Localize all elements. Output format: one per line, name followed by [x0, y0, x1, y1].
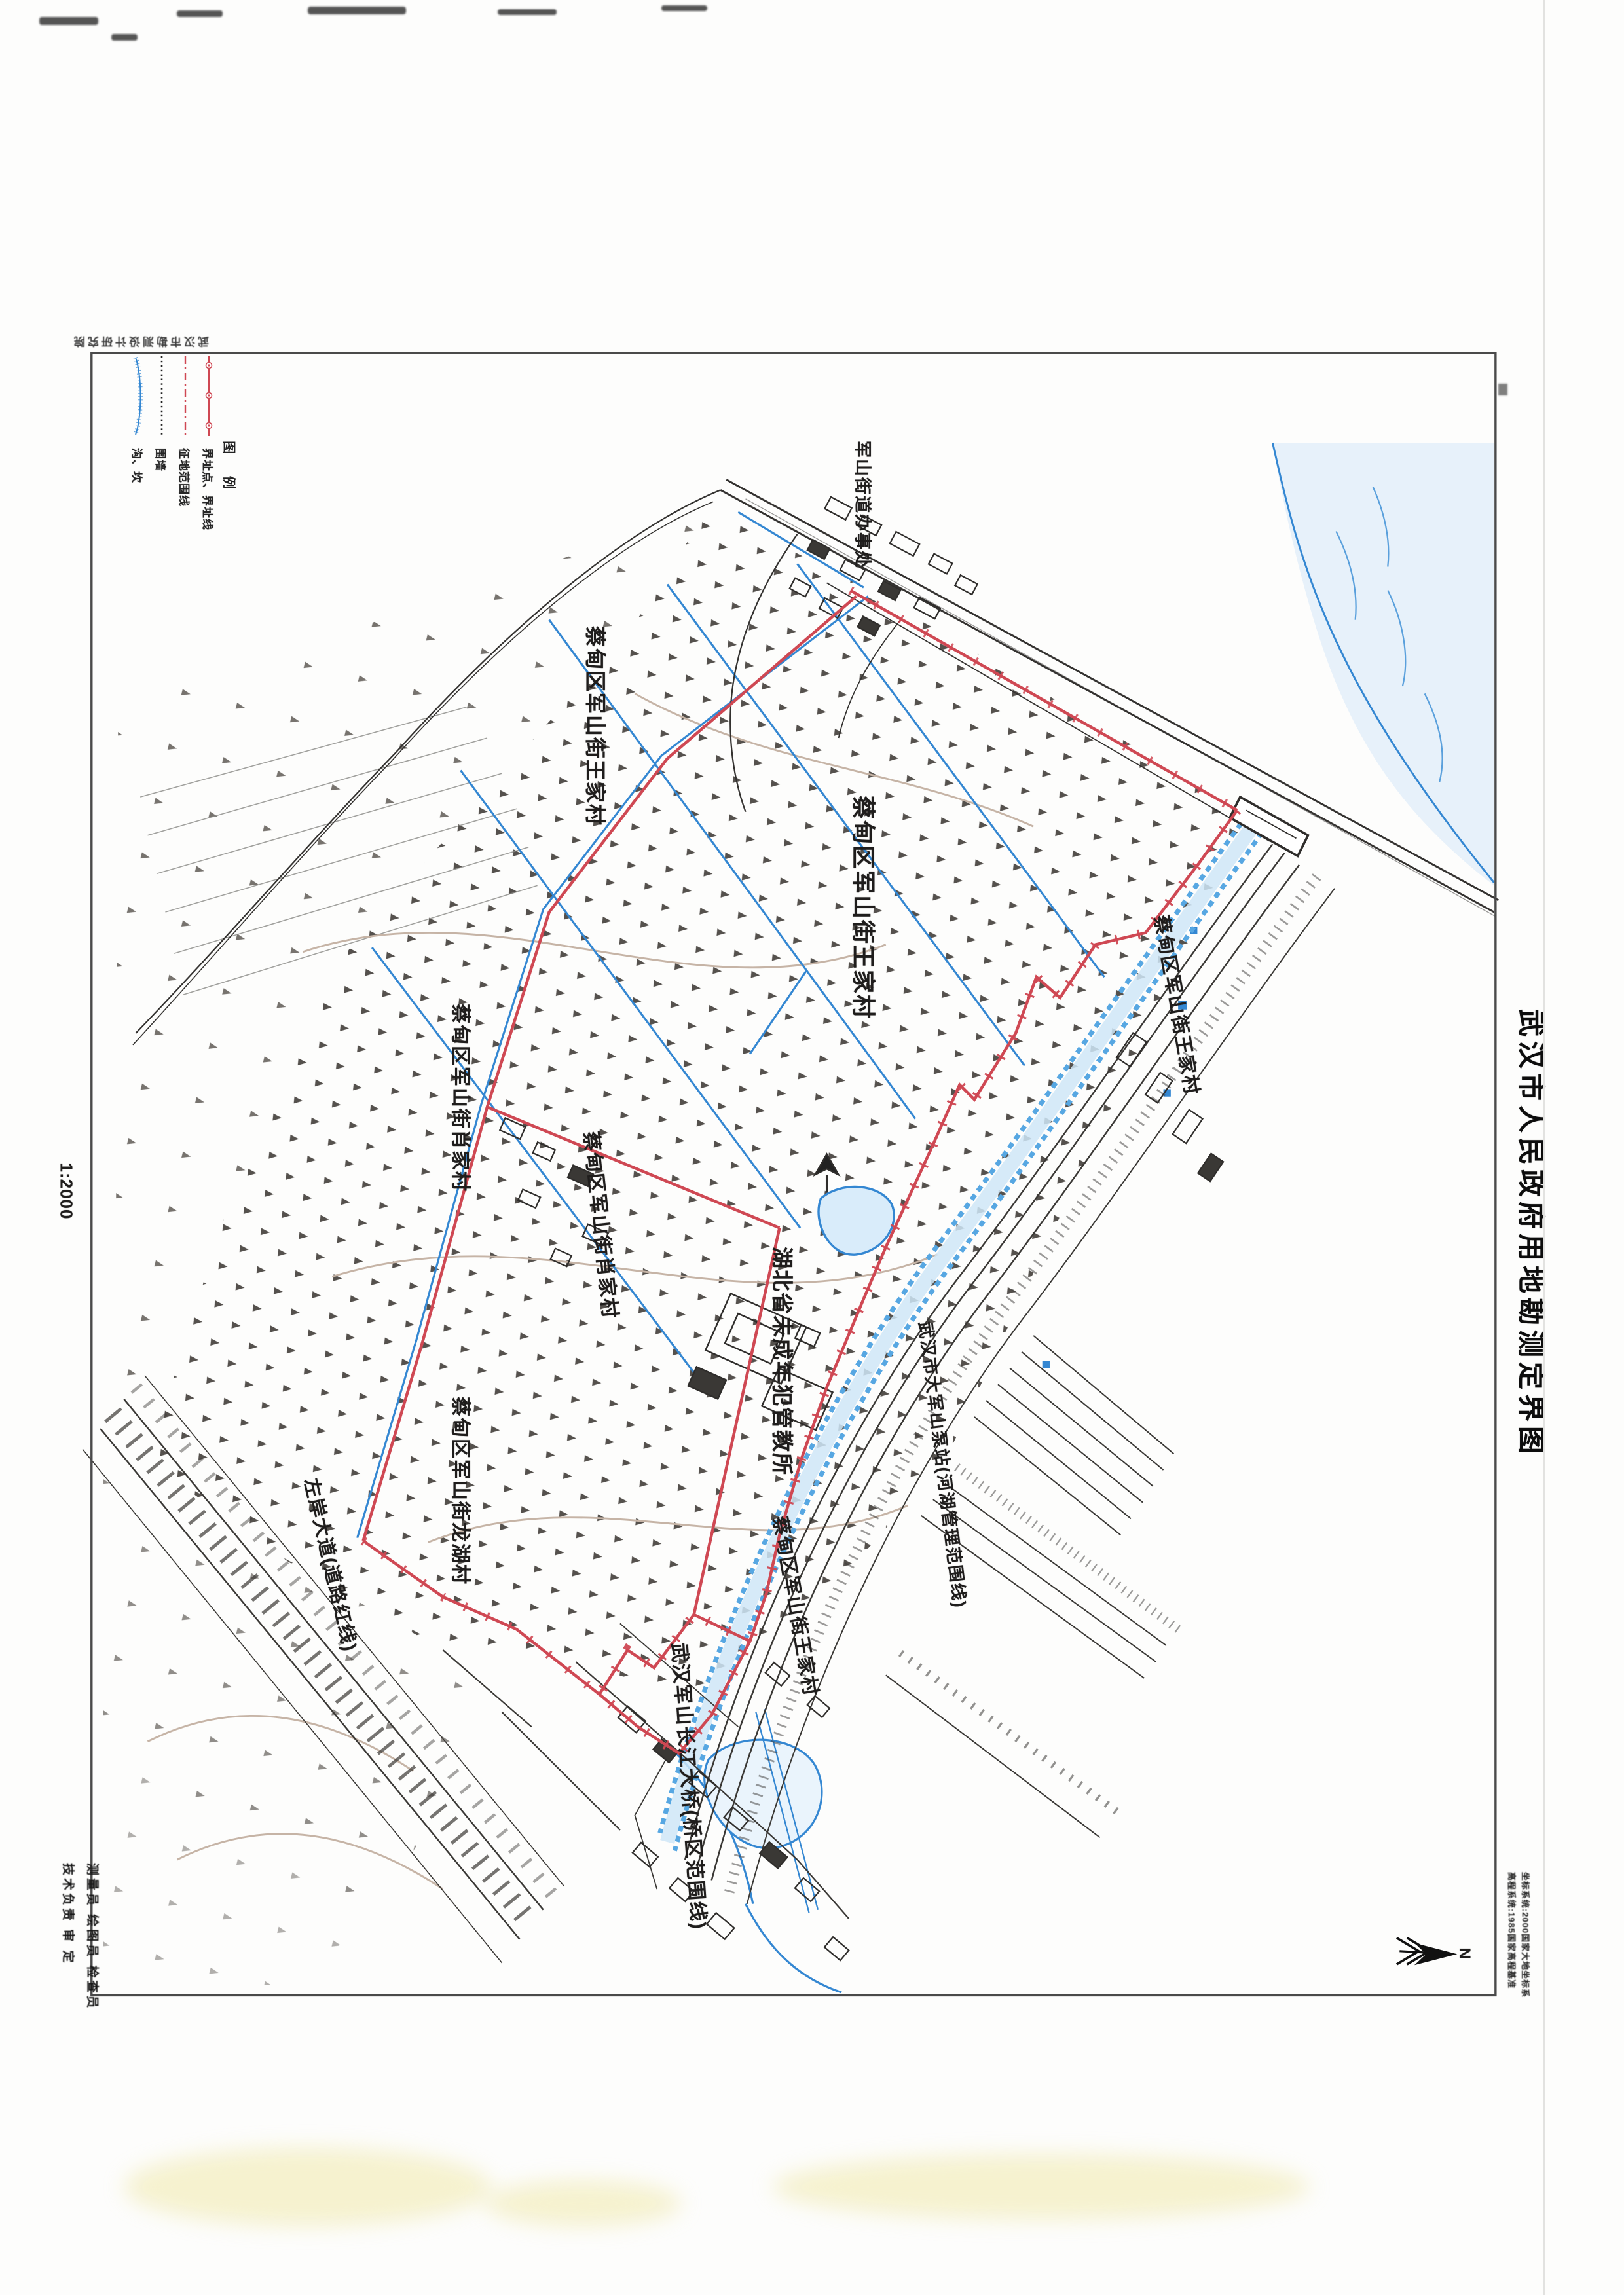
expropriation-line-icon — [180, 355, 191, 437]
boundary-point-line-icon — [204, 355, 214, 437]
legend: 图 例 界址点、界址线 征地范围线 围墙 — [109, 355, 240, 584]
legend-entry: 围墙 — [150, 355, 174, 584]
map-label-village: 蔡甸区军山街肖家村 — [448, 1004, 477, 1192]
map-label-institution: 湖北省未成年犯管教所 — [768, 1247, 800, 1476]
scan-edge-line — [1543, 0, 1545, 2295]
map-label-village: 蔡甸区军山街王家村 — [581, 626, 612, 826]
scan-stain — [773, 2154, 1310, 2220]
north-label: N — [1455, 1947, 1473, 1960]
scan-speck — [308, 7, 406, 14]
river — [1272, 443, 1494, 885]
scan-speck — [498, 9, 557, 15]
north-arrow — [1397, 1938, 1457, 1966]
scan-speck — [111, 34, 138, 41]
legend-entry-label: 沟、坎 — [130, 448, 147, 483]
legend-entry-label: 征地范围线 — [177, 448, 194, 507]
legend-entry-label: 界址点、界址线 — [201, 448, 217, 530]
wall-line-icon — [157, 355, 167, 437]
signature-block: 测量员 绘图员 检查员 技术负责 审 定 — [42, 1863, 120, 2040]
map-label-village: 蔡甸区军山街王家村 — [848, 796, 882, 1019]
scan-speck — [177, 10, 223, 17]
scan-speck — [1498, 384, 1507, 395]
scale-label: 1:2000 — [56, 1163, 77, 1220]
scan-stain — [485, 2180, 681, 2226]
sheet-title: 武汉市人民政府用地勘测定界图 — [1513, 1009, 1553, 1458]
map-label-town: 军山街道办事处 — [852, 441, 876, 569]
scan-speck — [661, 5, 707, 11]
surveyor-stamp: 武汉市勘测设计研究院 — [71, 335, 209, 351]
signature-row: 技术负责 审 定 — [60, 1863, 78, 2040]
legend-entry: 界址点、界址线 — [197, 355, 221, 584]
legend-title: 图 例 — [221, 355, 240, 584]
datum-note-elevation: 高程系统:1985国家高程基准 — [1504, 1872, 1518, 1998]
scan-speck — [39, 17, 98, 25]
map-drawing — [0, 0, 1624, 2295]
signature-row: 测量员 绘图员 检查员 — [84, 1863, 102, 2040]
legend-entry: 征地范围线 — [174, 355, 197, 584]
datum-notes: 坐标系统:2000国家大地坐标系 高程系统:1985国家高程基准 — [1504, 1872, 1532, 1998]
legend-entry-label: 围墙 — [154, 448, 170, 471]
map-label-village: 蔡甸区军山街龙湖村 — [448, 1397, 477, 1585]
legend-entry: 沟、坎 — [126, 355, 150, 584]
ditch-slope-icon — [132, 355, 144, 437]
scan-stain — [124, 2148, 491, 2226]
scanned-survey-sheet: 蔡甸区军山街王家村 蔡甸区军山街王家村 蔡甸区军山街王家村 蔡甸区军山街王家村 … — [0, 0, 1624, 2295]
datum-note-coordinate: 坐标系统:2000国家大地坐标系 — [1518, 1872, 1532, 1998]
